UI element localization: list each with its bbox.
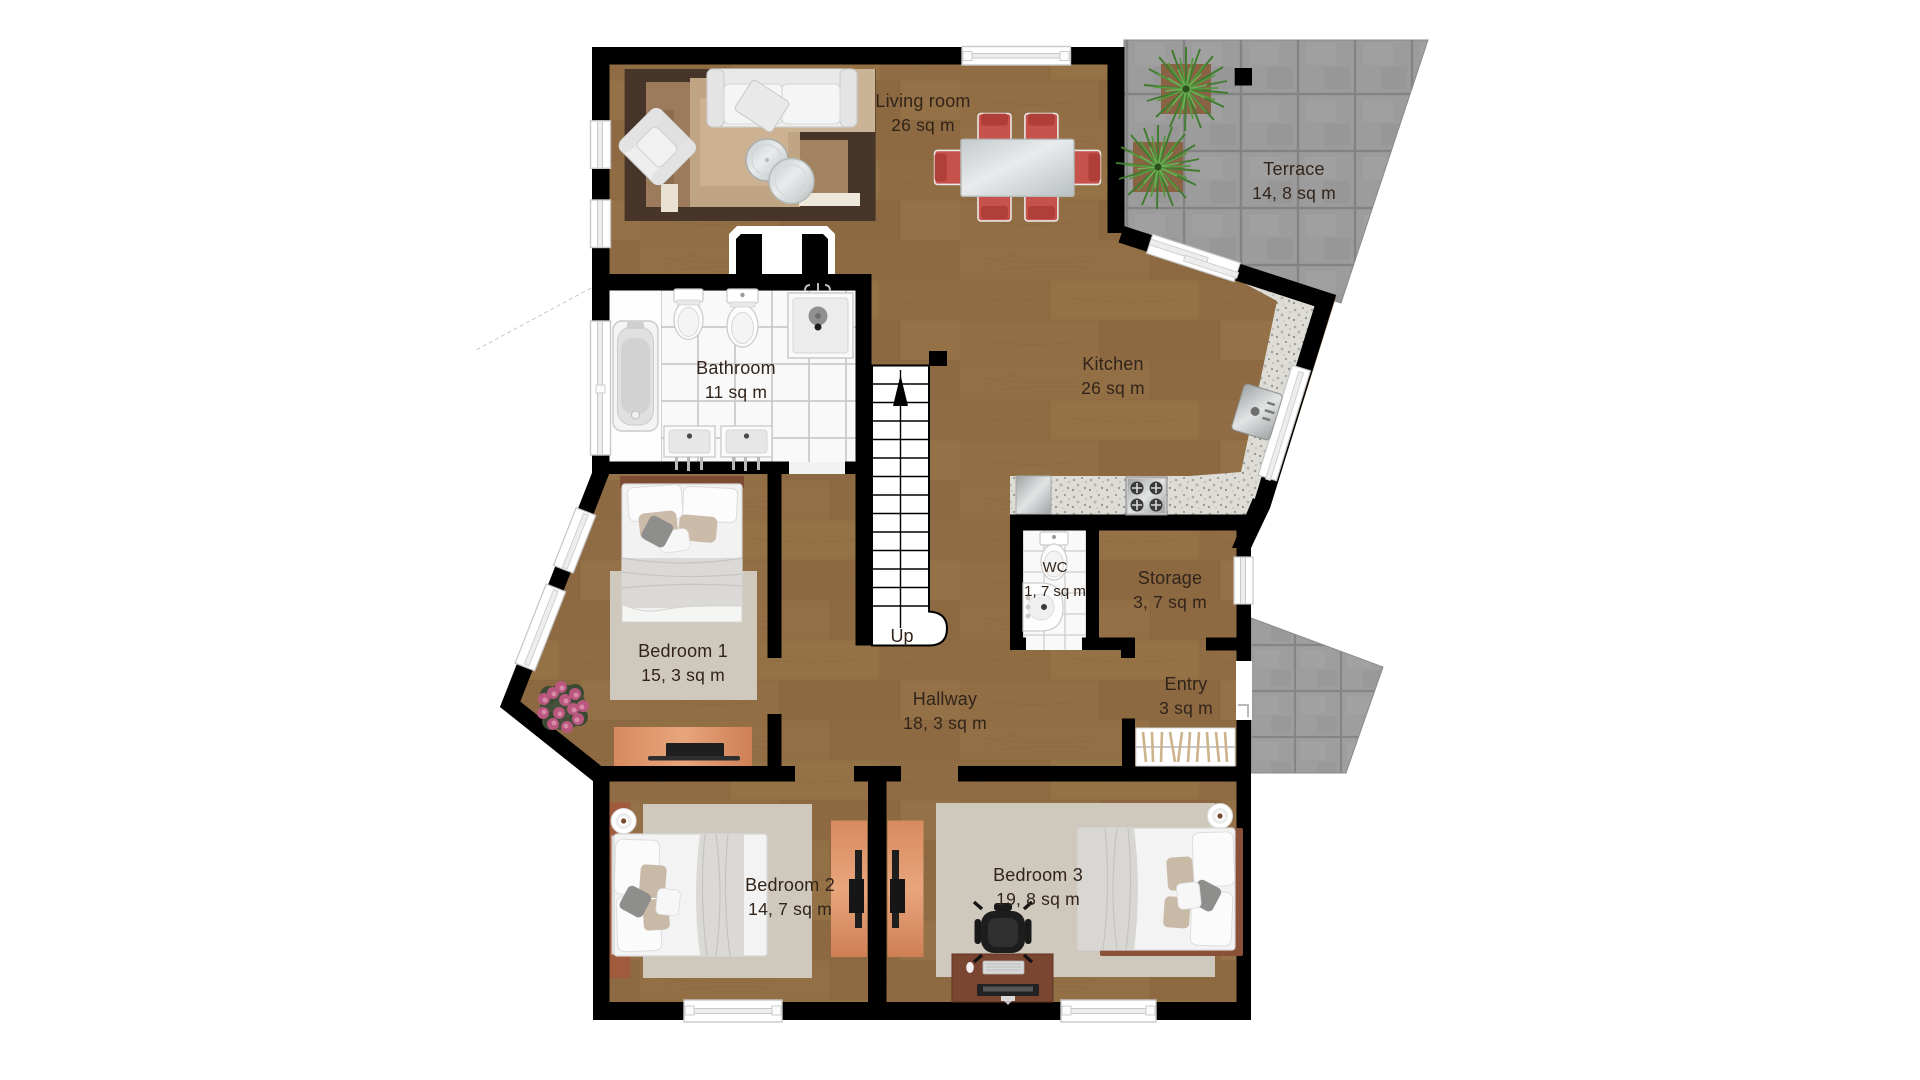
- svg-text:Up: Up: [890, 626, 913, 646]
- svg-text:11 sq m: 11 sq m: [705, 382, 767, 402]
- svg-text:14, 7 sq m: 14, 7 sq m: [748, 899, 832, 919]
- svg-text:19, 8 sq m: 19, 8 sq m: [996, 889, 1080, 909]
- svg-text:Storage: Storage: [1138, 568, 1202, 588]
- svg-text:1, 7 sq m: 1, 7 sq m: [1024, 583, 1086, 600]
- svg-text:Terrace: Terrace: [1263, 159, 1324, 179]
- svg-text:Bathroom: Bathroom: [696, 358, 776, 378]
- svg-text:3 sq m: 3 sq m: [1159, 698, 1213, 718]
- svg-text:WC: WC: [1043, 559, 1068, 576]
- svg-text:Entry: Entry: [1164, 674, 1207, 694]
- svg-text:26 sq m: 26 sq m: [891, 115, 955, 135]
- svg-text:15, 3 sq m: 15, 3 sq m: [641, 665, 725, 685]
- svg-text:Bedroom 3: Bedroom 3: [993, 865, 1083, 885]
- svg-text:Bedroom 2: Bedroom 2: [745, 875, 835, 895]
- svg-text:Hallway: Hallway: [913, 689, 977, 709]
- svg-text:14, 8 sq m: 14, 8 sq m: [1252, 183, 1336, 203]
- svg-text:26 sq m: 26 sq m: [1081, 378, 1145, 398]
- svg-text:18, 3 sq m: 18, 3 sq m: [903, 713, 987, 733]
- svg-text:Bedroom 1: Bedroom 1: [638, 641, 728, 661]
- svg-text:3, 7 sq m: 3, 7 sq m: [1133, 592, 1207, 612]
- svg-text:Living room: Living room: [875, 91, 970, 111]
- svg-text:Kitchen: Kitchen: [1082, 354, 1143, 374]
